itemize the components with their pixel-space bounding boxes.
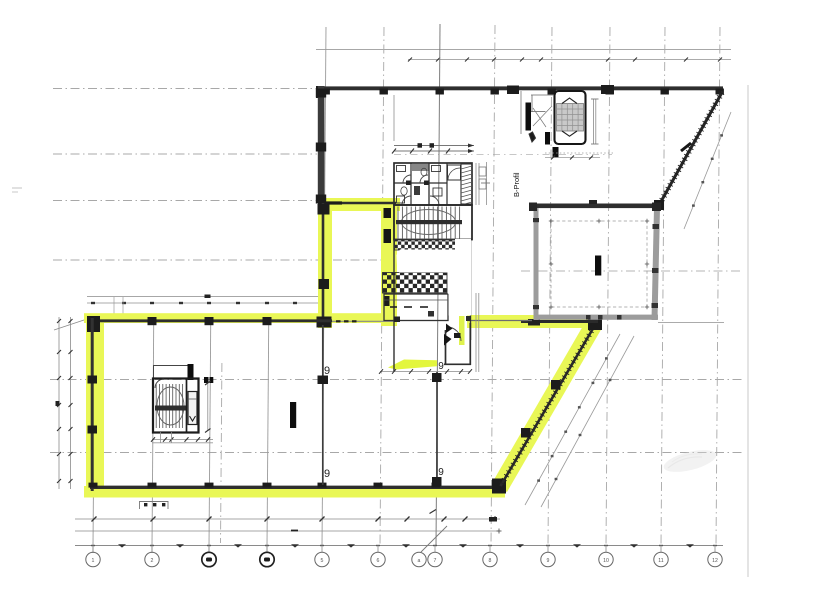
svg-text:a: a xyxy=(418,558,421,564)
svg-text:8: 8 xyxy=(489,558,492,564)
svg-text:6: 6 xyxy=(377,558,380,564)
svg-text:9: 9 xyxy=(438,361,444,372)
svg-text:9: 9 xyxy=(324,468,330,480)
svg-text:5: 5 xyxy=(321,558,324,564)
svg-text:12: 12 xyxy=(712,558,718,564)
svg-text:11: 11 xyxy=(658,558,663,564)
svg-text:9: 9 xyxy=(547,558,550,564)
svg-text:7: 7 xyxy=(434,558,437,564)
svg-text:9: 9 xyxy=(324,365,330,377)
svg-text:9: 9 xyxy=(438,467,444,478)
svg-text:B-Profil: B-Profil xyxy=(512,172,521,197)
svg-text:10: 10 xyxy=(603,558,609,564)
svg-text:2: 2 xyxy=(151,558,154,564)
svg-text:1: 1 xyxy=(92,558,95,564)
